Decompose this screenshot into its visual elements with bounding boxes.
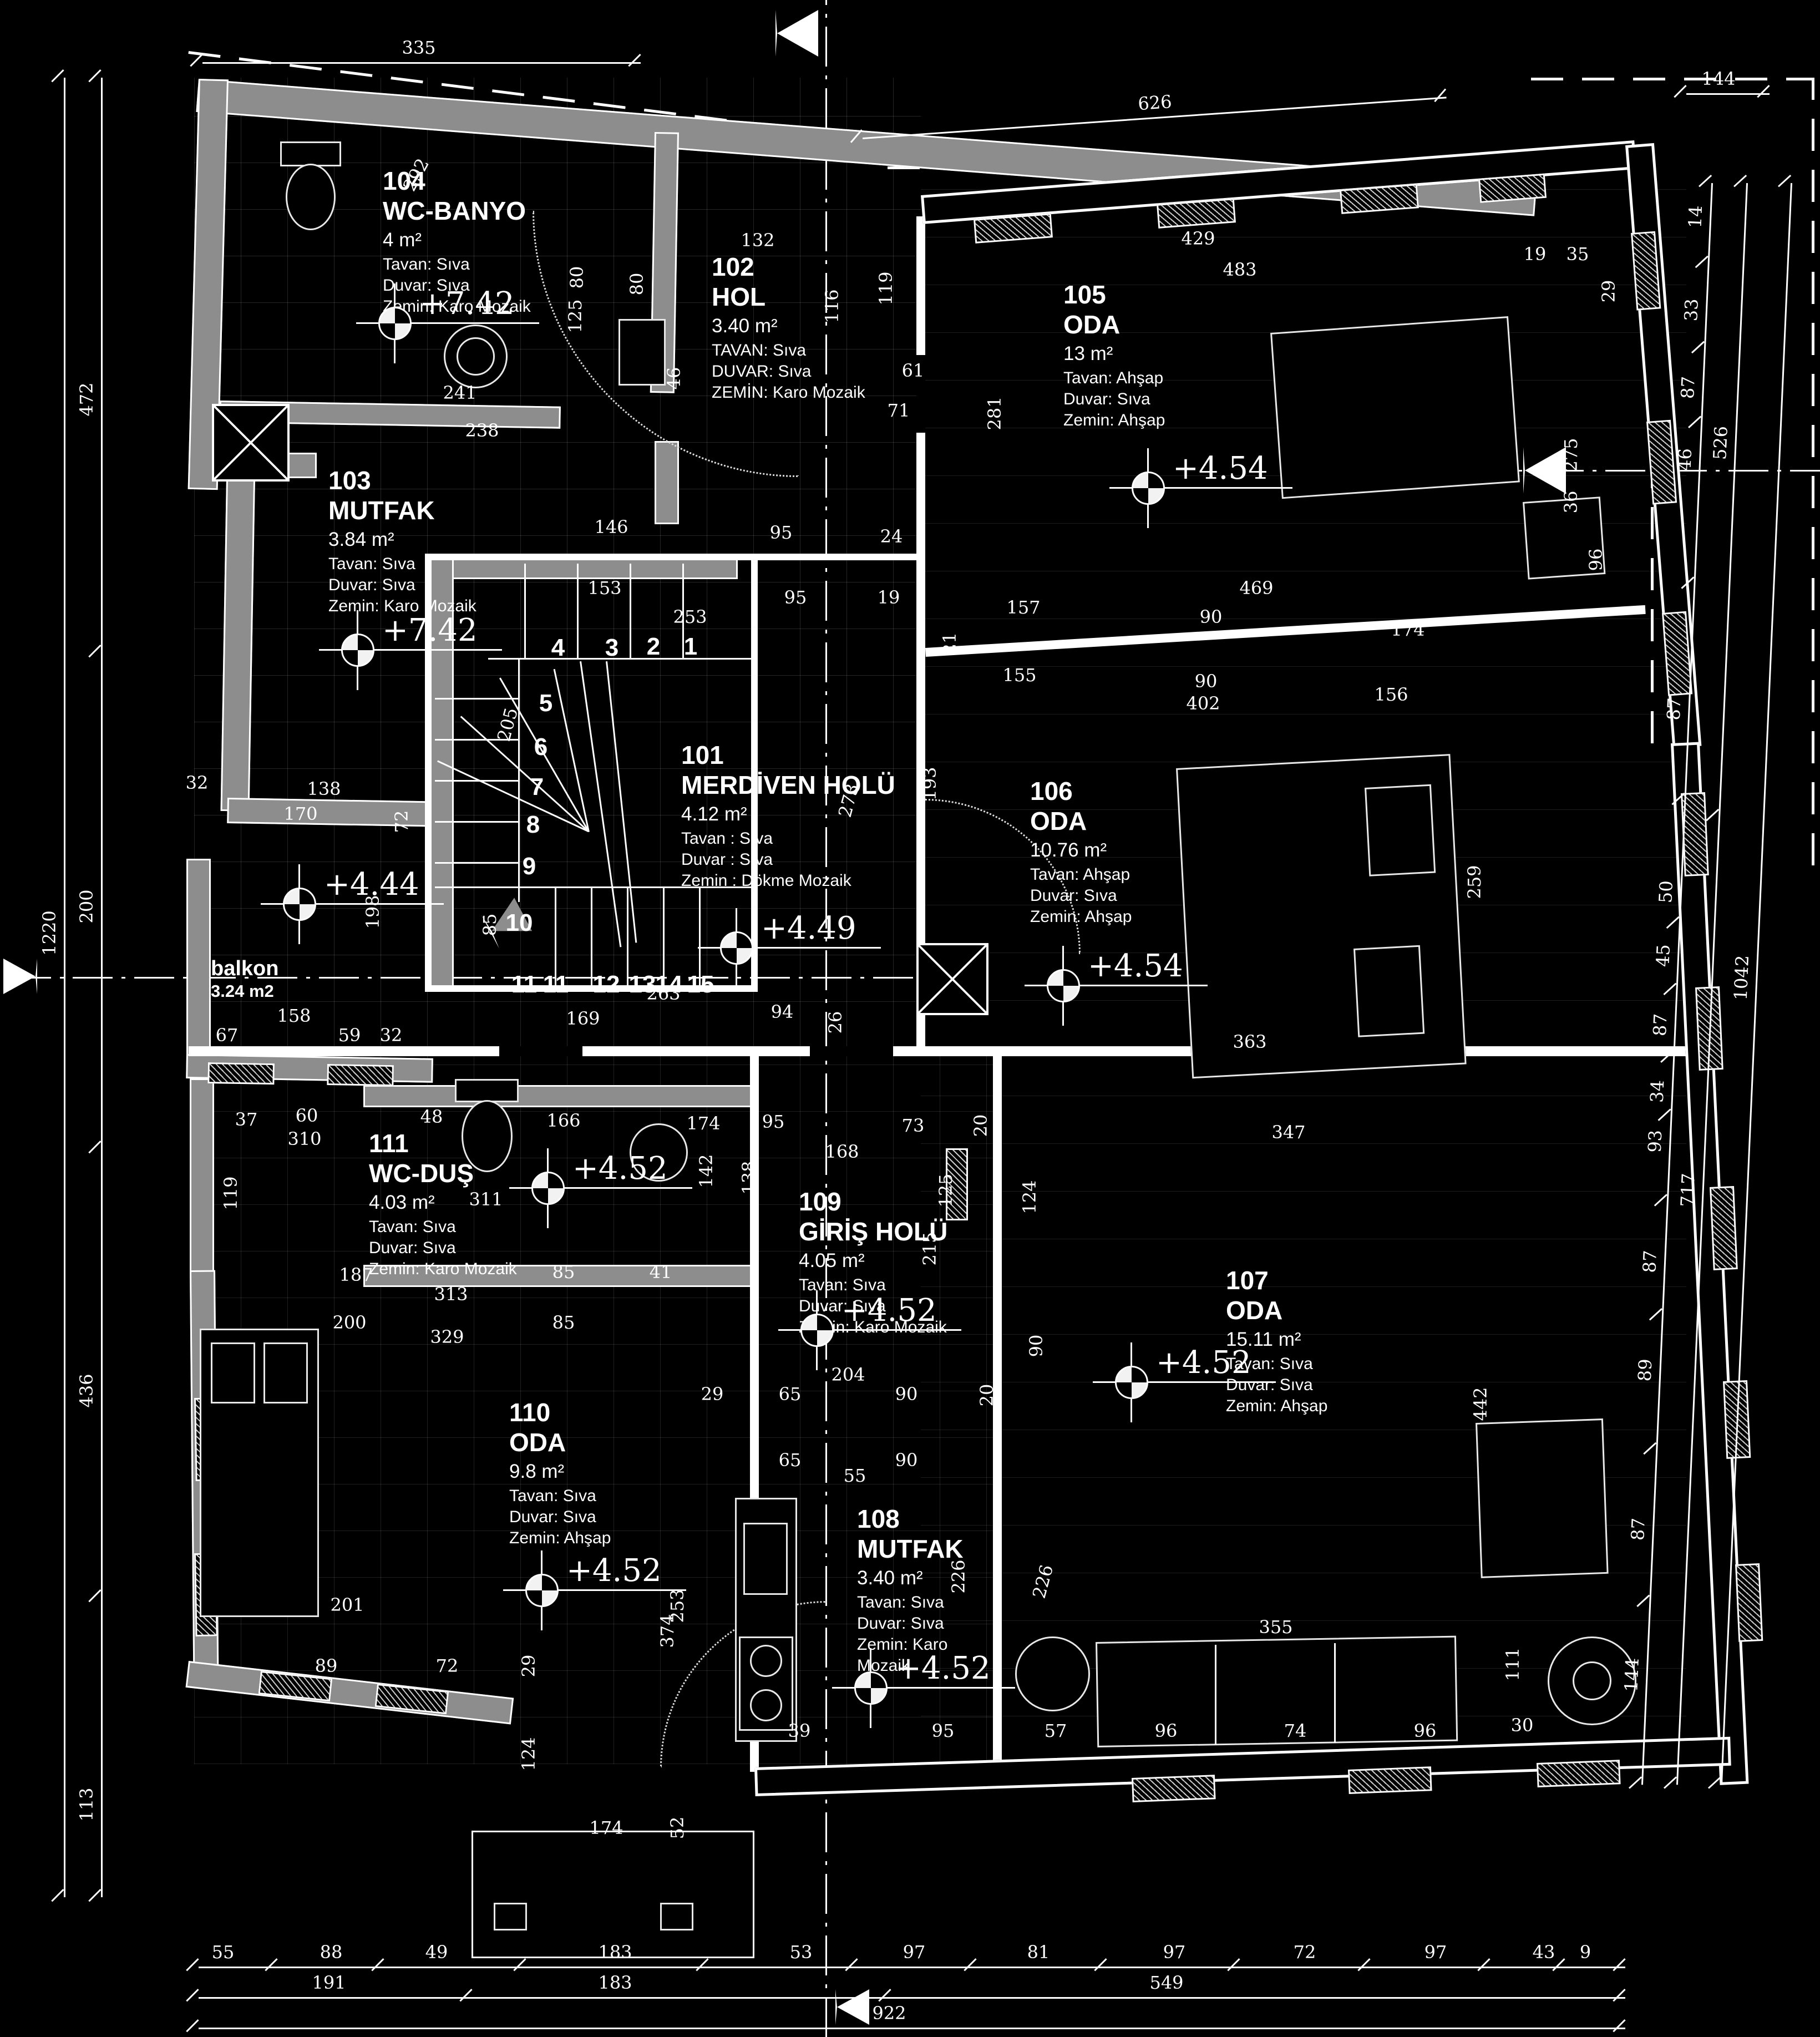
dimension-line	[101, 78, 103, 1897]
room-wall: Duvar : Sıva	[681, 849, 895, 870]
level-marker: +4.52	[531, 1172, 565, 1205]
dimension-tick	[51, 1889, 64, 1902]
window-right-6	[1710, 1186, 1738, 1270]
sink-108	[743, 1523, 788, 1595]
bed-110-pillow-1	[211, 1342, 255, 1403]
window-bottom-2	[1348, 1766, 1432, 1794]
level-value: +7.42	[382, 612, 478, 648]
dim-label: 48	[420, 1106, 443, 1127]
window-top-1	[974, 213, 1053, 244]
room-area: 4.12 m²	[681, 800, 895, 828]
dimension-tick	[88, 1589, 101, 1602]
dimension-tick	[1663, 982, 1676, 995]
room-number: 106	[1030, 777, 1132, 805]
dimension-tick	[1094, 1958, 1107, 1971]
wall-104-102-divider-lower	[655, 441, 679, 524]
dim-label: 26	[825, 1011, 846, 1034]
level-circle-icon	[531, 1172, 565, 1205]
dimension-tick	[51, 69, 64, 82]
stair-step-number: 5	[539, 690, 552, 717]
dimension-tick	[1688, 416, 1701, 428]
room-floor: Zemin: Ahşap	[509, 1528, 611, 1549]
level-circle-icon	[283, 888, 316, 921]
stair-tread-8	[435, 821, 518, 823]
dimension-line	[202, 62, 641, 64]
dim-label: 174	[686, 1113, 720, 1134]
dimension-tick	[190, 54, 202, 67]
dim-label: 95	[932, 1720, 955, 1741]
room-number: 108	[857, 1504, 1004, 1533]
dim-label: 125	[565, 299, 586, 333]
section-arrow-bottom	[835, 1989, 869, 2025]
dim-label: 35	[1566, 244, 1589, 265]
dim-label: 313	[434, 1284, 468, 1305]
wall-service-105-divider	[916, 216, 925, 1048]
room-number: 107	[1226, 1266, 1327, 1295]
dim-label: 111	[1502, 1647, 1523, 1681]
dim-label: 483	[1223, 259, 1256, 280]
sofa-107-division-2	[1334, 1643, 1336, 1743]
level-value: +4.52	[1156, 1345, 1251, 1381]
dimension-tick	[628, 54, 641, 67]
dim-chain-label: 922	[872, 2003, 906, 2024]
dim-label: 138	[307, 778, 341, 799]
dim-label: 90	[1026, 1335, 1047, 1357]
level-circle-icon	[1132, 472, 1165, 505]
stair-step-number: 8	[526, 811, 540, 839]
room-ceiling: Tavan : Sıva	[681, 828, 895, 849]
dim-label: 80	[626, 273, 647, 296]
room-number: 110	[509, 1398, 611, 1427]
dim-label: 29	[518, 1655, 539, 1678]
dim-label: 67	[216, 1025, 239, 1046]
dim-label: 57	[1045, 1720, 1067, 1741]
dim-label: 80	[566, 266, 587, 289]
dim-label: 169	[566, 1008, 600, 1029]
window-balkon-1	[207, 1062, 275, 1085]
dashed-boundary-right-outer	[1812, 78, 1814, 865]
stair-step-number: 13	[629, 971, 656, 999]
door-gap-110	[499, 1046, 582, 1056]
dimension-tick	[696, 1958, 708, 1971]
dim-label: 85	[552, 1261, 575, 1283]
dim-chain-label: 626	[1137, 91, 1173, 114]
dim-label: 215	[919, 1232, 940, 1265]
stair-step-number: 15	[687, 971, 714, 999]
sofa-107	[1096, 1636, 1458, 1747]
room-floor: ZEMİN: Karo Mozaik	[712, 382, 865, 403]
dim-label: 275	[1560, 438, 1581, 472]
dimension-tick	[1733, 175, 1747, 187]
level-value: +4.54	[1173, 450, 1268, 487]
dim-label: 469	[1239, 577, 1273, 599]
dimension-tick	[1666, 916, 1680, 928]
level-circle-icon	[854, 1671, 888, 1705]
dim-label: 442	[1470, 1387, 1491, 1421]
stair-tread-9	[435, 862, 518, 864]
dimension-tick	[1658, 1108, 1671, 1121]
dim-label: 96	[1585, 549, 1606, 571]
room-name: ODA	[1226, 1295, 1327, 1326]
stove-108-burner-2	[750, 1689, 782, 1721]
dim-label: 59	[338, 1025, 361, 1046]
table-107	[1015, 1636, 1090, 1711]
dim-label: 37	[235, 1109, 258, 1130]
room-number: 111	[369, 1129, 517, 1158]
porch-step-right	[660, 1903, 693, 1930]
dimension-tick	[1357, 1958, 1370, 1971]
dim-chain-label: 55	[212, 1942, 235, 1963]
window-bottom-3	[1537, 1760, 1621, 1787]
dim-chain-label: 97	[1163, 1942, 1186, 1963]
dim-chain-label: 45	[1652, 944, 1674, 967]
dim-label: 193	[919, 767, 940, 800]
stair-step-number: 11	[511, 971, 538, 999]
dim-label: 95	[762, 1111, 785, 1132]
dim-label: 158	[277, 1005, 311, 1026]
room-name: MUTFAK	[328, 495, 476, 526]
room-number: 103	[328, 466, 476, 495]
dimension-tick	[371, 1958, 384, 1971]
room-ceiling: Tavan: Sıva	[857, 1592, 1004, 1613]
dim-label: 36	[1560, 491, 1581, 514]
dim-label: 142	[696, 1154, 717, 1188]
stair-winder-2	[460, 716, 589, 832]
room-label-101: 101 MERDİVEN HOLÜ 4.12 m² Tavan : Sıva D…	[681, 741, 895, 891]
wall-stair-top-edge	[425, 554, 924, 560]
dim-label: 226	[1028, 1563, 1058, 1601]
dimension-tick	[88, 645, 101, 657]
lamp-107-inner	[1573, 1661, 1611, 1700]
room-ceiling: Tavan: Sıva	[369, 1217, 517, 1238]
wall-111-top	[363, 1085, 754, 1107]
room-area: 13 m²	[1063, 340, 1165, 368]
dim-chain-label: 97	[1424, 1942, 1447, 1963]
room-number: 102	[712, 252, 865, 281]
dim-chain-label: 335	[402, 37, 435, 58]
level-marker: +4.52	[1115, 1366, 1148, 1399]
level-circle-icon	[1047, 969, 1080, 1002]
dim-label: 198	[362, 895, 383, 929]
dim-label: 157	[1006, 597, 1040, 618]
stair-step-number: 6	[534, 733, 547, 761]
dim-label: 85	[479, 914, 500, 936]
room-label-110: 110 ODA 9.8 m² Tavan: Sıva Duvar: Sıva Z…	[509, 1398, 611, 1549]
wall-balkon-left	[186, 859, 211, 1068]
dim-chain-label: 436	[76, 1374, 97, 1407]
dim-label: 355	[1259, 1617, 1292, 1638]
dimension-tick	[1706, 809, 1719, 821]
dimension-tick	[1757, 85, 1770, 98]
dim-label: 24	[880, 526, 903, 547]
room-ceiling: Tavan: Sıva	[328, 554, 476, 575]
dim-label: 200	[332, 1312, 366, 1333]
dimension-tick	[878, 1989, 891, 2001]
dimension-tick	[88, 1889, 101, 1902]
dim-chain-label: 93	[1644, 1129, 1666, 1153]
dimension-tick	[88, 69, 101, 82]
dim-label: 311	[469, 1189, 503, 1210]
dim-chain-label: 87	[1663, 697, 1685, 721]
room-label-106: 106 ODA 10.76 m² Tavan: Ahşap Duvar: Sıv…	[1030, 777, 1132, 928]
shower-104	[212, 404, 290, 482]
dim-label: 95	[784, 587, 807, 608]
stair-railing-2	[606, 661, 637, 943]
dim-label: 61	[902, 360, 925, 381]
room-floor: Zemin : Dökme Mozaik	[681, 870, 895, 891]
dim-chain-label: 33	[1680, 298, 1702, 321]
couch-105	[1270, 316, 1520, 499]
dim-chain-label: 183	[598, 1972, 632, 1993]
window-bottom-1	[1132, 1775, 1216, 1802]
dimension-tick	[1649, 1308, 1662, 1320]
dim-label: 39	[788, 1720, 811, 1741]
dim-label: 187	[339, 1264, 373, 1285]
washbasin-102	[619, 319, 666, 386]
room-label-107: 107 ODA 15.11 m² Tavan: Sıva Duvar: Sıva…	[1226, 1266, 1327, 1417]
dim-label: 329	[430, 1326, 464, 1347]
window-top-2	[1157, 198, 1236, 229]
dimension-tick	[88, 1141, 101, 1153]
room-floor: Zemin: Ahşap	[1063, 410, 1165, 431]
window-top-4	[1478, 174, 1547, 203]
dim-chain-label: 43	[1533, 1942, 1555, 1963]
dim-chain-label: 526	[1709, 425, 1732, 460]
level-value: +4.54	[1088, 948, 1183, 984]
level-marker: +4.52	[525, 1574, 559, 1607]
dim-label: 347	[1271, 1122, 1305, 1143]
dim-label: 170	[283, 803, 317, 824]
dim-chain-label: 200	[76, 889, 97, 923]
dim-label: 429	[1181, 228, 1215, 249]
dimension-tick	[265, 1958, 277, 1971]
dim-label: 55	[844, 1465, 866, 1486]
dim-chain-label: 144	[1620, 1658, 1643, 1693]
dim-label: 201	[330, 1594, 364, 1615]
window-balkon-2	[327, 1064, 394, 1086]
stair-tread-1	[524, 564, 526, 658]
dim-chain-label: 472	[76, 382, 97, 416]
dimension-tick	[1613, 1989, 1625, 2001]
level-value: +4.52	[566, 1553, 662, 1589]
dimension-tick	[1699, 175, 1712, 187]
level-marker: +4.52	[854, 1671, 888, 1705]
stair-tread-5	[435, 698, 518, 700]
dim-label: 32	[186, 772, 209, 793]
sink-103-inner	[457, 337, 495, 376]
dim-chain-label: 1220	[39, 910, 60, 955]
stair-railing-1	[580, 661, 621, 947]
dim-label: 65	[779, 1450, 802, 1471]
dim-chain-label: 34	[1646, 1080, 1669, 1103]
dimension-tick	[186, 2019, 199, 2032]
level-marker: +4.54	[1047, 969, 1080, 1002]
dim-label: 253	[667, 1589, 688, 1623]
dim-chain-label: 144	[1701, 68, 1735, 89]
dim-label: 90	[895, 1450, 918, 1471]
room-area: 9.8 m²	[509, 1458, 611, 1486]
dim-chain-label: 53	[790, 1942, 813, 1963]
dimension-line	[199, 2028, 1625, 2029]
wall-left-110-upper	[190, 1078, 214, 1278]
stair-tread-3	[630, 564, 631, 658]
dimension-tick	[1674, 85, 1686, 98]
dim-label: 124	[1019, 1180, 1040, 1214]
room-floor: Zemin: Karo Mozaik	[369, 1259, 517, 1280]
dimension-line	[199, 1997, 1625, 1999]
dim-chain-label: 87	[1639, 1250, 1661, 1273]
level-value: +4.49	[761, 910, 856, 946]
room-area: 3.40 m²	[857, 1564, 1004, 1592]
stair-step-number: 2	[647, 633, 660, 661]
room-number: 101	[681, 741, 895, 769]
dimension-tick	[1636, 1594, 1650, 1607]
dimension-tick	[1227, 1958, 1240, 1971]
toilet-104-bowl	[286, 164, 336, 230]
level-circle-icon	[1115, 1366, 1148, 1399]
room-area: 10.76 m²	[1030, 837, 1132, 864]
toilet-104-tank	[280, 141, 341, 166]
stair-step-number: 11	[543, 971, 569, 999]
dim-chain-label: 89	[1634, 1359, 1656, 1382]
dim-chain-label: 49	[425, 1942, 448, 1963]
dim-label: 259	[1464, 865, 1485, 899]
dim-label: 19	[1524, 244, 1547, 265]
bed-106-pillow-1	[1365, 784, 1436, 876]
level-value: +4.52	[895, 1650, 991, 1686]
dim-chain-label: 1042	[1730, 955, 1753, 1001]
room-label-102: 102 HOL 3.40 m² TAVAN: Sıva DUVAR: Sıva …	[712, 252, 865, 403]
dim-chain-label: 717	[1676, 1173, 1699, 1208]
dimension-tick	[1664, 1776, 1677, 1788]
room-area: 3.24 m2	[211, 980, 278, 1002]
dim-label: 19	[878, 587, 900, 608]
room-name: WC-BANYO	[383, 195, 531, 226]
dim-label: 241	[443, 382, 476, 403]
room-ceiling: TAVAN: Sıva	[712, 340, 865, 361]
level-value: +7.42	[419, 286, 515, 322]
dimension-tick	[1434, 89, 1446, 103]
toilet-111-tank	[455, 1079, 519, 1102]
dim-label: 20	[976, 1384, 997, 1407]
room-area: 4 m²	[383, 226, 531, 254]
dim-label: 253	[673, 606, 707, 627]
dim-chain-label: 87	[1677, 376, 1699, 399]
dim-label: 204	[831, 1364, 865, 1385]
level-circle-icon	[800, 1314, 834, 1347]
dim-label: 30	[1511, 1715, 1534, 1736]
dim-chain-label: 113	[76, 1787, 97, 1821]
stair-step-number: 7	[530, 773, 544, 801]
dim-chain-label: 14	[1684, 205, 1706, 229]
dimension-tick	[513, 1958, 526, 1971]
stair-step-number: 1	[684, 633, 697, 661]
dim-label: 29	[1598, 280, 1619, 303]
room-name: WC-DUŞ	[369, 1158, 517, 1189]
stair-step-number: 3	[605, 634, 619, 662]
stair-step-number: 9	[523, 853, 536, 880]
window-right-8	[1735, 1563, 1763, 1642]
centerline-horizontal-left	[11, 977, 921, 979]
dimension-tick	[459, 1989, 472, 2001]
room-wall: Duvar: Sıva	[1030, 885, 1132, 906]
room-wall: Duvar: Sıva	[1063, 389, 1165, 410]
dimension-tick	[1778, 175, 1791, 187]
dimension-tick	[1629, 1776, 1642, 1788]
dim-label: 32	[380, 1025, 403, 1046]
dimension-tick	[1695, 256, 1709, 268]
dim-label: 124	[518, 1737, 539, 1771]
dim-label: 74	[1284, 1720, 1307, 1741]
dim-label: 168	[825, 1141, 859, 1162]
dashed-boundary-top-right	[1531, 78, 1813, 80]
floor-plan-canvas: 104 WC-BANYO 4 m² Tavan: Sıva Duvar: Sıv…	[0, 0, 1820, 2037]
dim-label: 363	[1233, 1031, 1266, 1052]
level-value: +4.52	[841, 1293, 937, 1329]
dim-label: 29	[701, 1384, 724, 1405]
stair-step-number: 14	[656, 971, 683, 999]
dim-chain-label: 87	[1627, 1517, 1649, 1541]
stair-step-number: 10	[506, 909, 533, 937]
dim-chain-label: 50	[1655, 880, 1677, 903]
door-gap-109	[810, 1046, 893, 1056]
dim-label: 96	[1414, 1720, 1437, 1741]
wall-left-mid	[221, 478, 255, 812]
room-label-103: 103 MUTFAK 3.84 m² Tavan: Sıva Duvar: Sı…	[328, 466, 476, 617]
room-area: 3.84 m²	[328, 526, 476, 554]
dim-chain-label: 72	[1294, 1942, 1316, 1963]
dim-label: 72	[436, 1655, 459, 1676]
dim-label: 238	[465, 420, 499, 441]
dim-label: 71	[888, 400, 910, 421]
stair-flight-edge	[518, 658, 520, 902]
room-name: ODA	[509, 1427, 611, 1458]
dim-label: 116	[822, 289, 843, 323]
dim-chain-label: 183	[598, 1942, 632, 1963]
dim-label: 310	[287, 1128, 321, 1149]
dim-label: 226	[948, 1559, 969, 1593]
dim-label: 153	[587, 577, 621, 599]
dim-chain-label: 81	[1027, 1942, 1050, 1963]
shaft-box	[916, 943, 988, 1015]
stove-108-burner-1	[750, 1645, 782, 1677]
dimension-tick	[186, 1958, 199, 1971]
dim-chain-label: 9	[1580, 1942, 1591, 1963]
level-marker: +4.44	[283, 888, 316, 921]
porch-step-left	[494, 1903, 527, 1930]
dim-label: 146	[594, 516, 628, 538]
level-marker: +7.42	[341, 634, 374, 667]
room-name: balkon	[211, 957, 278, 980]
room-ceiling: Tavan: Ahşap	[1030, 864, 1132, 885]
dim-chain-label: 549	[1149, 1972, 1183, 1993]
dim-label: 85	[552, 1312, 575, 1333]
wall-110-bottom	[186, 1661, 514, 1724]
dim-label: 21	[939, 632, 960, 655]
sofa-107-division-1	[1215, 1645, 1216, 1745]
section-arrow-right	[1523, 447, 1566, 494]
bed-106-pillow-2	[1353, 945, 1424, 1037]
dimension-tick	[1654, 1194, 1667, 1206]
dimension-tick	[186, 1989, 199, 2001]
dimension-tick	[1691, 341, 1705, 353]
dim-label: 90	[895, 1384, 918, 1405]
dim-label: 138	[738, 1161, 759, 1194]
dimension-line	[64, 78, 65, 1897]
room-floor: Zemin: Ahşap	[1030, 906, 1132, 928]
level-marker: +4.52	[800, 1314, 834, 1347]
room-name: ODA	[1030, 805, 1132, 837]
